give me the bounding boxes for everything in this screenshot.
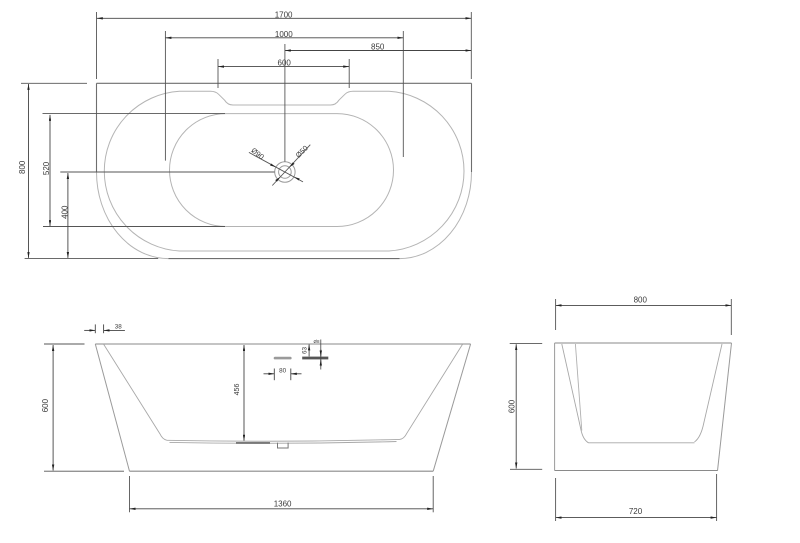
svg-text:800: 800 bbox=[18, 160, 27, 174]
svg-text:Ø90: Ø90 bbox=[249, 146, 265, 162]
svg-text:1360: 1360 bbox=[274, 499, 292, 508]
svg-text:850: 850 bbox=[371, 43, 385, 52]
svg-text:600: 600 bbox=[41, 398, 50, 412]
svg-text:600: 600 bbox=[507, 399, 516, 413]
svg-text:63: 63 bbox=[302, 347, 309, 355]
svg-text:80: 80 bbox=[279, 367, 287, 374]
svg-text:Ø50: Ø50 bbox=[294, 144, 310, 160]
svg-text:456: 456 bbox=[234, 384, 241, 396]
svg-text:38: 38 bbox=[115, 324, 123, 331]
svg-text:520: 520 bbox=[42, 161, 51, 175]
svg-text:1700: 1700 bbox=[275, 10, 293, 19]
svg-text:400: 400 bbox=[60, 205, 69, 219]
svg-text:720: 720 bbox=[629, 507, 643, 516]
svg-text:Ø8: Ø8 bbox=[313, 339, 320, 344]
svg-text:800: 800 bbox=[634, 295, 648, 304]
svg-text:1000: 1000 bbox=[275, 30, 293, 39]
